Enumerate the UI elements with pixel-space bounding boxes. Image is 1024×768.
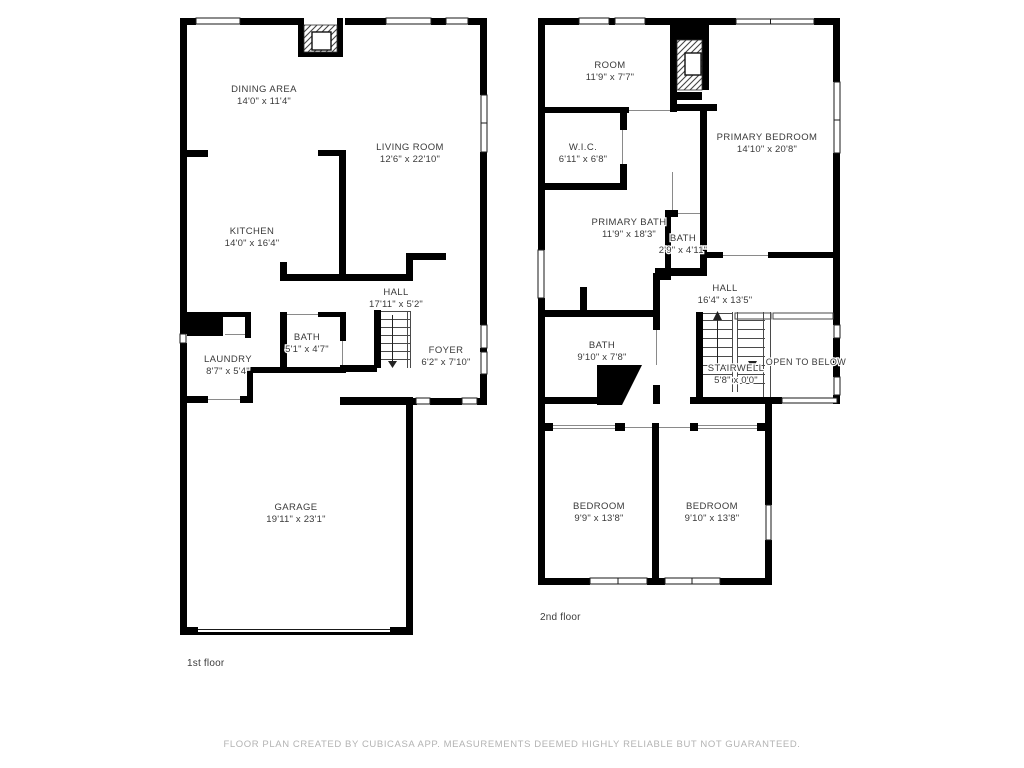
- room-dims-bedroom-right: 9'10" x 13'8": [685, 513, 740, 524]
- floor1-stairs-icon: [381, 311, 411, 368]
- room-dims-bath-small: 2'9" x 4'11": [659, 245, 708, 256]
- room-dims-bedroom-left: 9'9" x 13'8": [574, 513, 623, 524]
- room-dims-foyer: 6'2" x 7'10": [421, 357, 470, 368]
- room-dims-bath-1f: 5'1" x 4'7": [285, 344, 329, 355]
- floor2-walls: [538, 18, 840, 585]
- room-label-wic: W.I.C.: [569, 142, 597, 153]
- room-label-bath-small: BATH: [670, 233, 696, 244]
- room-label-stairwell: STAIRWELL: [708, 363, 765, 374]
- room-label-bedroom-right: BEDROOM: [686, 501, 738, 512]
- floor2-plan: ROOM 11'9" x 7'7" W.I.C. 6'11" x 6'8" PR…: [538, 18, 846, 585]
- room-dims-primary-bedroom: 14'10" x 20'8": [737, 144, 797, 155]
- room-dims-wic: 6'11" x 6'8": [559, 154, 608, 165]
- room-dims-dining-area: 14'0" x 11'4": [237, 96, 291, 107]
- fireplace-icon: [304, 25, 337, 52]
- room-dims-living-room: 12'6" x 22'10": [380, 154, 440, 165]
- chimney-icon: [677, 40, 702, 90]
- garage-door: [198, 627, 390, 632]
- room-label-dining-area: DINING AREA: [231, 84, 297, 95]
- room-label-bedroom-left: BEDROOM: [573, 501, 625, 512]
- room-label-room: ROOM: [594, 60, 625, 71]
- floorplan-svg: DINING AREA 14'0" x 11'4" LIVING ROOM 12…: [0, 0, 1024, 768]
- floor2-caption: 2nd floor: [540, 612, 581, 623]
- floor1-plan: DINING AREA 14'0" x 11'4" LIVING ROOM 12…: [180, 18, 487, 635]
- room-dims-kitchen: 14'0" x 16'4": [225, 238, 280, 249]
- room-dims-hall-2f: 16'4" x 13'5": [698, 295, 753, 306]
- room-dims-hall-1f: 17'11" x 5'2": [369, 299, 423, 310]
- room-dims-laundry: 8'7" x 5'4": [206, 366, 250, 377]
- room-dims-bath-2f: 9'10" x 7'8": [577, 352, 626, 363]
- room-label-primary-bedroom: PRIMARY BEDROOM: [717, 132, 818, 143]
- floor1-walls: [180, 18, 487, 635]
- room-label-hall-2f: HALL: [712, 283, 737, 294]
- room-dims-primary-bath: 11'9" x 18'3": [602, 229, 656, 240]
- room-label-kitchen: KITCHEN: [230, 226, 275, 237]
- floor1-caption: 1st floor: [187, 658, 225, 669]
- room-label-laundry: LAUNDRY: [204, 354, 252, 365]
- room-dims-room: 11'9" x 7'7": [586, 72, 635, 83]
- room-label-bath-1f: BATH: [294, 332, 320, 343]
- room-label-garage: GARAGE: [274, 502, 317, 513]
- room-label-bath-2f: BATH: [589, 340, 615, 351]
- understair-wall: [597, 365, 642, 405]
- room-label-foyer: FOYER: [429, 345, 464, 356]
- room-dims-stairwell: 5'8" x 0'0": [714, 375, 758, 386]
- room-label-living-room: LIVING ROOM: [376, 142, 444, 153]
- floorplan-page: DINING AREA 14'0" x 11'4" LIVING ROOM 12…: [0, 0, 1024, 768]
- footer-disclaimer: FLOOR PLAN CREATED BY CUBICASA APP. MEAS…: [223, 739, 800, 750]
- room-label-open-to-below: OPEN TO BELOW: [766, 357, 846, 367]
- room-dims-garage: 19'11" x 23'1": [266, 514, 325, 525]
- room-label-hall-1f: HALL: [383, 287, 408, 298]
- room-label-primary-bath: PRIMARY BATH: [591, 217, 666, 228]
